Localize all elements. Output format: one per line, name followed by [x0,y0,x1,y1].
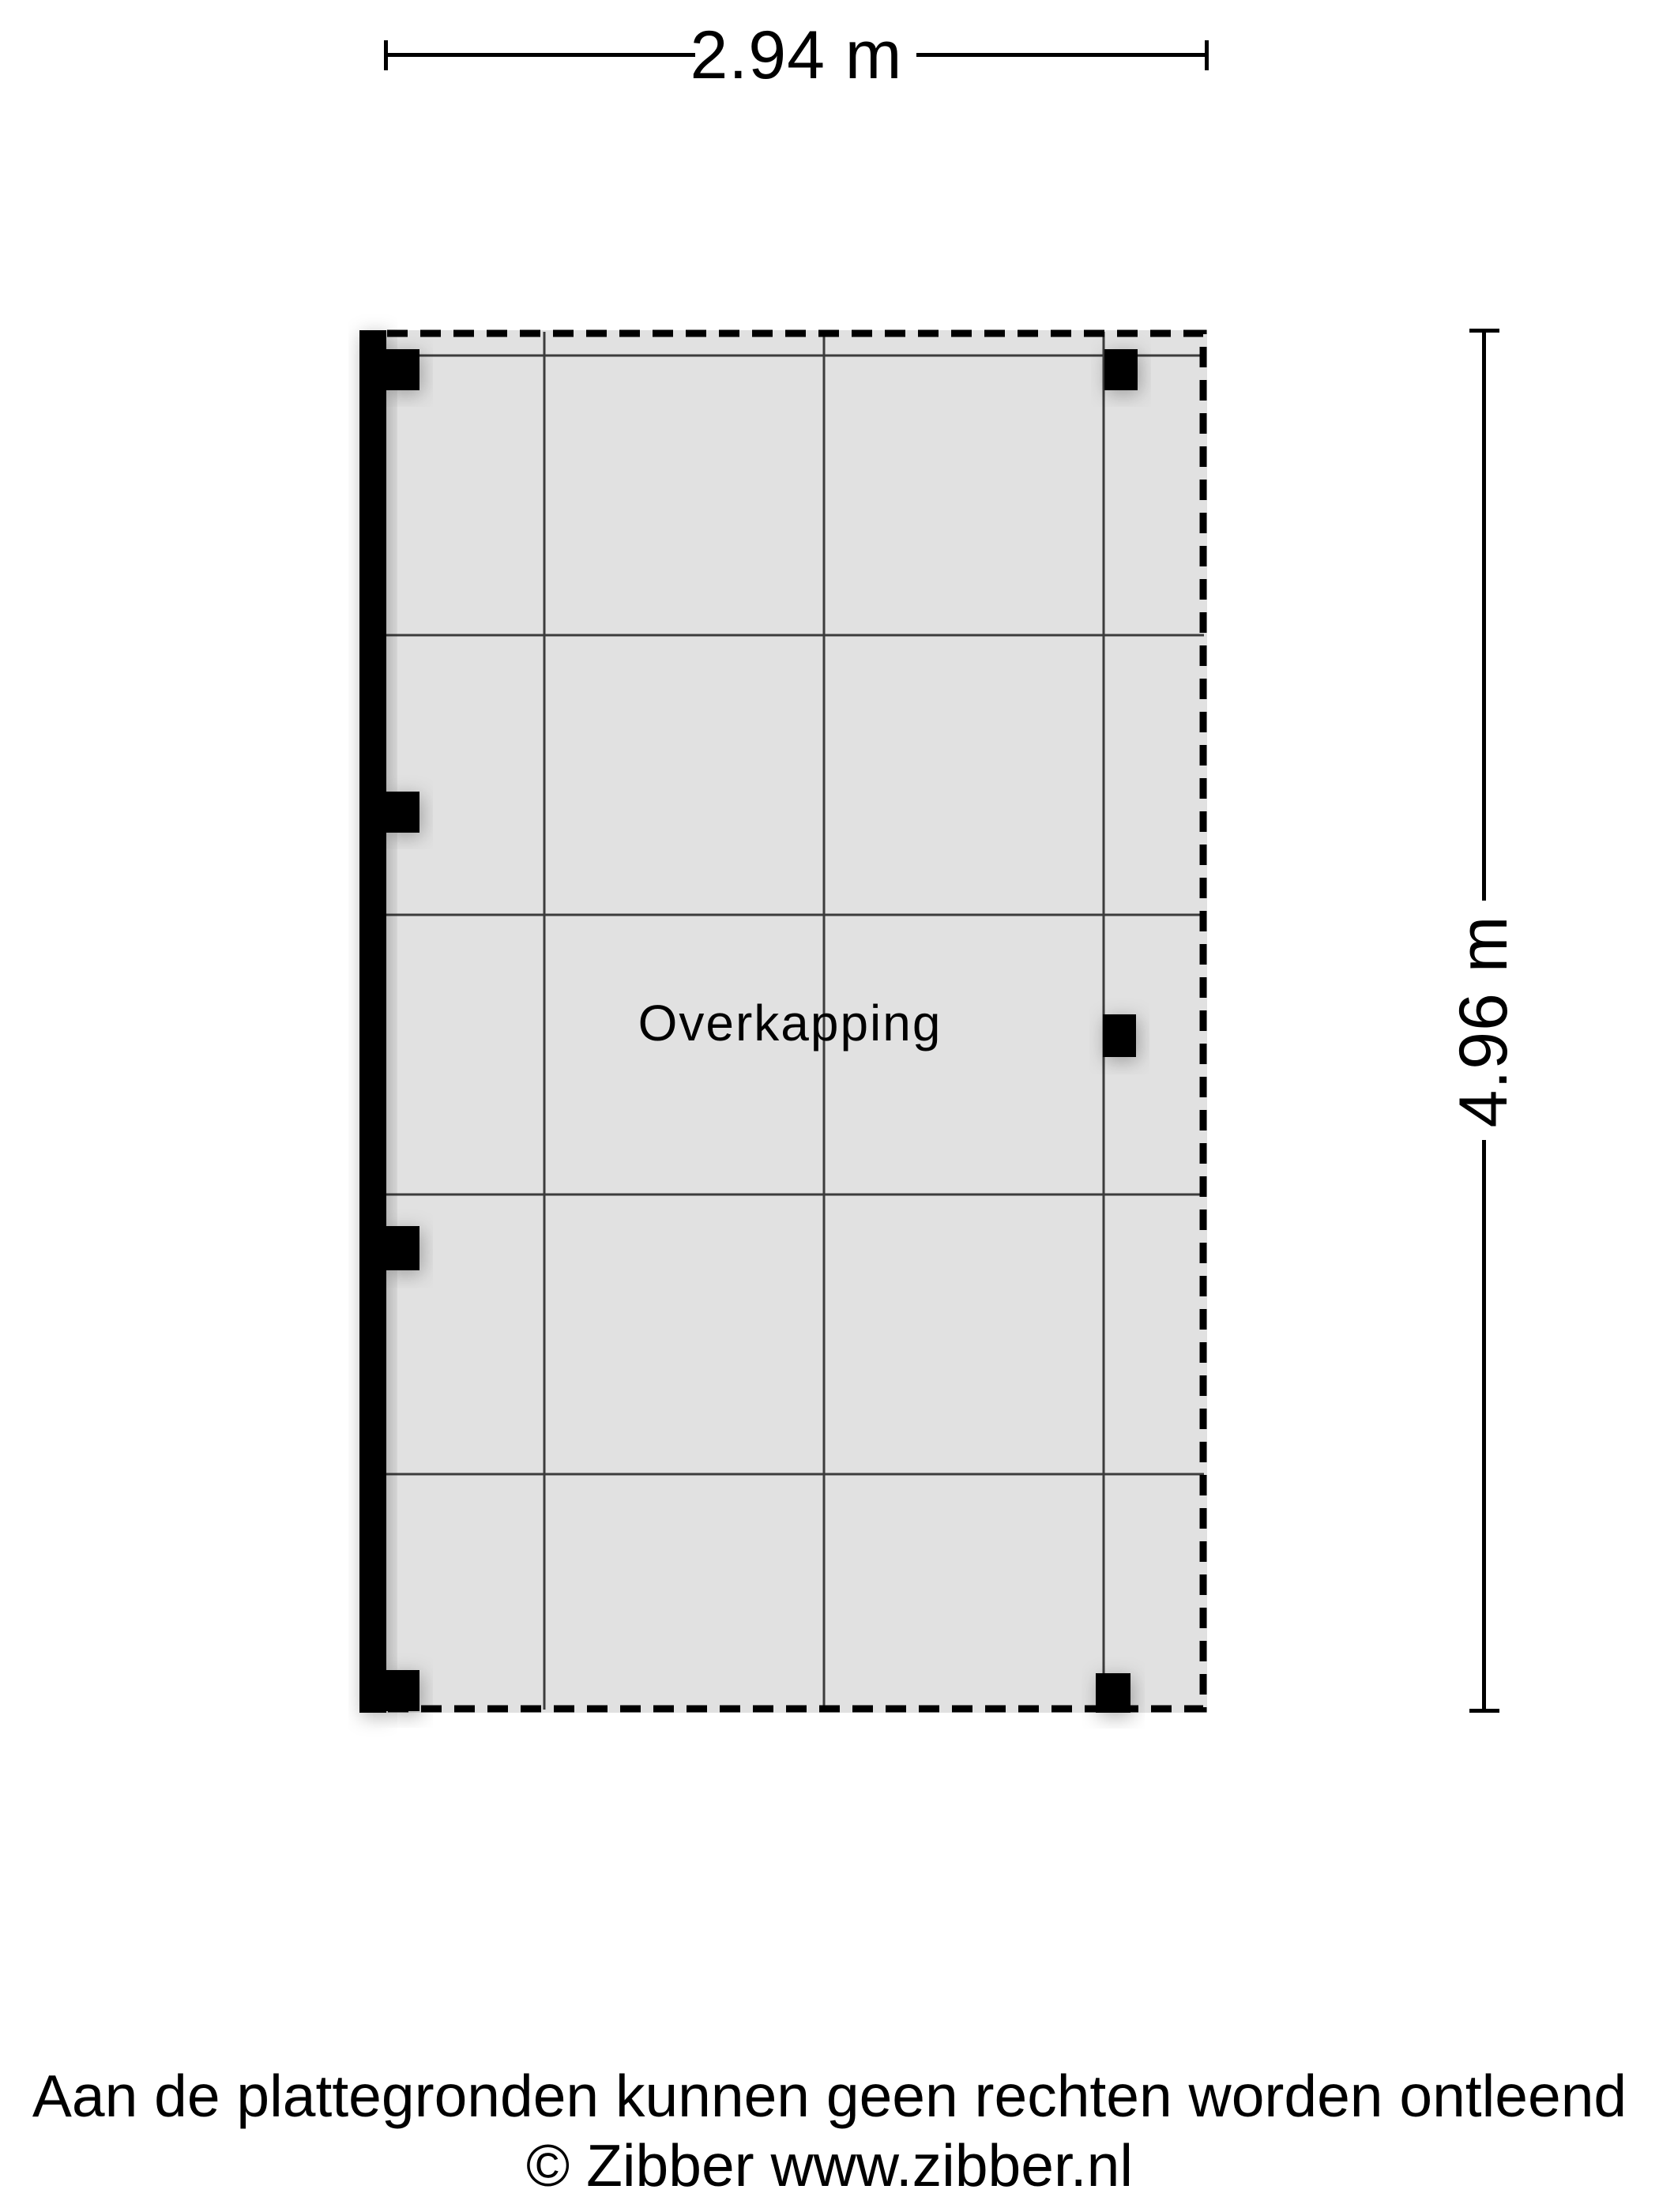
right-dimension-label: 4.96 m [1450,903,1518,1140]
floorplan-page: 2.94 m Overkapping [0,0,1659,2212]
roof-post [1103,1014,1136,1057]
dimension-line-segment [1482,1140,1486,1713]
roof-post [386,1226,419,1270]
dimension-end-tick [1469,329,1499,333]
disclaimer-text: Aan de plattegronden kunnen geen rechten… [0,2060,1659,2131]
roof-post [386,792,419,833]
copyright-text: © Zibber www.zibber.nl [0,2130,1659,2201]
room-label: Overkapping [553,989,1027,1057]
dimension-end-tick [1469,1709,1499,1713]
roof-post [1096,1673,1130,1713]
floorplan-canvas [0,0,1659,2212]
roof-post [386,1670,419,1711]
dimension-line-segment [1482,330,1486,901]
roof-post [386,349,419,390]
roof-post [1104,349,1138,390]
wall [359,330,386,1713]
